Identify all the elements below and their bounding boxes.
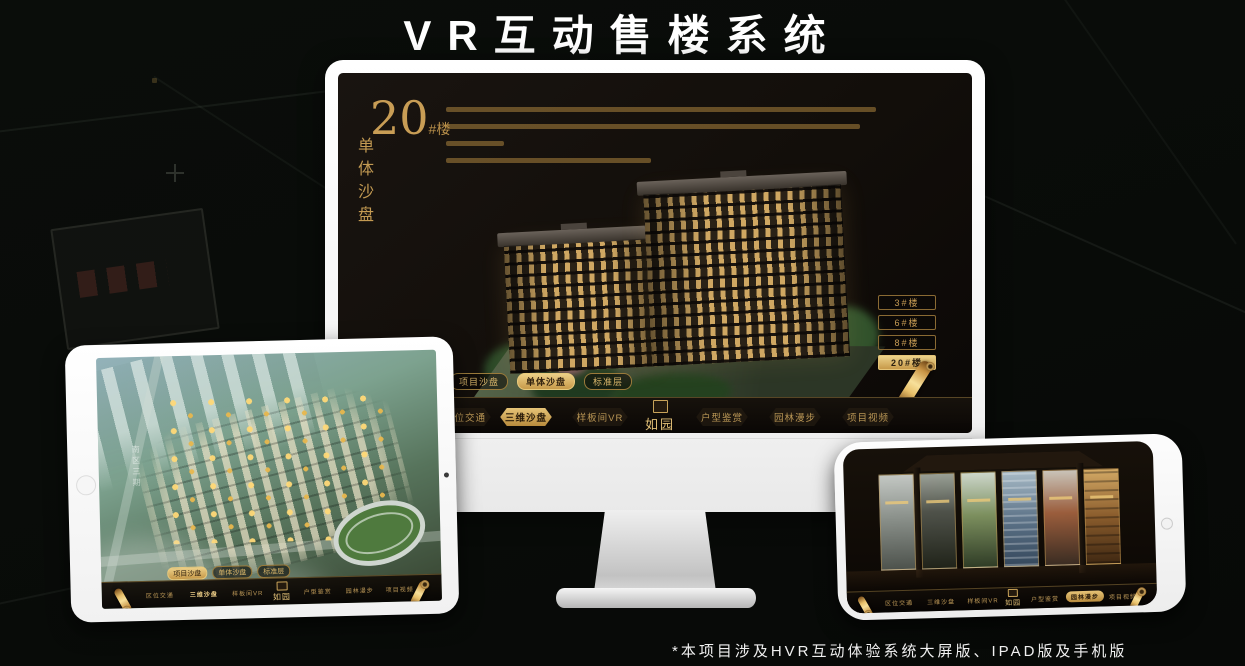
seal-icon: [1008, 589, 1018, 597]
tablet-nav-showroom-vr[interactable]: 样板间VR: [232, 588, 264, 598]
tab-single-sandbox[interactable]: 单体沙盘: [517, 373, 575, 390]
brand-logo-text: 如园: [645, 414, 675, 433]
block-subtitle: 单体沙盘: [352, 137, 376, 229]
phone-nav-garden-walk[interactable]: 园林漫步: [1066, 590, 1104, 602]
scene-card[interactable]: [878, 474, 916, 571]
phone-camera-icon: [1161, 517, 1173, 529]
phone-nav-location[interactable]: 区位交通: [885, 598, 913, 608]
camera-icon: [444, 472, 449, 477]
floor-button-3[interactable]: 3#楼: [878, 295, 936, 310]
bg-map-label: [152, 78, 157, 83]
tab-project-sandbox[interactable]: 项目沙盘: [450, 373, 508, 390]
nav-project-video[interactable]: 项目视频: [838, 408, 898, 426]
seal-icon: [652, 400, 667, 413]
tablet-screen: 南区三期 项目沙盘 单体沙盘 标准层 区位交通 三维沙盘 样板间VR 如园 户型…: [96, 350, 442, 609]
scroll-icon[interactable]: [113, 587, 133, 609]
bg-compass-icon: [166, 164, 184, 182]
footnote: *本项目涉及HVR互动体验系统大屏版、IPAD版及手机版: [672, 640, 1237, 661]
tablet-nav-garden-walk[interactable]: 园林漫步: [346, 585, 374, 595]
floor-button-8[interactable]: 8#楼: [878, 335, 936, 350]
scene-card[interactable]: [1042, 469, 1080, 566]
page: VR互动售楼系统 20#楼 单体沙盘: [0, 0, 1245, 666]
scene-gallery: [844, 467, 1157, 572]
scene-card[interactable]: [960, 471, 998, 568]
block-title: 20#楼: [370, 95, 450, 141]
monitor-stand-base: [556, 588, 756, 608]
tablet-nav-unit-gallery[interactable]: 户型鉴赏: [304, 586, 332, 596]
tablet-tab-project-sandbox[interactable]: 项目沙盘: [167, 566, 207, 580]
bg-plaque: [50, 208, 219, 350]
building-wing: [504, 238, 658, 374]
phone-screen: 区位交通 三维沙盘 样板间VR 如园 户型鉴赏 园林漫步 项目视频: [843, 441, 1157, 614]
phone-brand-logo-text: 如园: [1005, 598, 1021, 608]
tab-standard-floor[interactable]: 标准层: [584, 373, 632, 390]
bg-map-road: [982, 194, 1245, 407]
building-wing: [643, 184, 850, 366]
tablet-mockup: 南区三期 项目沙盘 单体沙盘 标准层 区位交通 三维沙盘 样板间VR 如园 户型…: [65, 336, 460, 622]
phone-nav-3d-sandbox[interactable]: 三维沙盘: [927, 597, 955, 607]
home-button-icon[interactable]: [76, 475, 96, 495]
scene-card[interactable]: [1001, 470, 1039, 567]
tablet-nav-3d-sandbox[interactable]: 三维沙盘: [190, 589, 218, 599]
nav-garden-walk[interactable]: 园林漫步: [765, 408, 825, 426]
nav-3d-sandbox[interactable]: 三维沙盘: [496, 408, 556, 426]
nav-unit-gallery[interactable]: 户型鉴赏: [692, 408, 752, 426]
brand-logo: 如园: [645, 400, 675, 433]
tablet-tab-single-sandbox[interactable]: 单体沙盘: [212, 565, 252, 579]
tablet-nav-location[interactable]: 区位交通: [146, 590, 174, 600]
scene-card[interactable]: [919, 473, 957, 570]
building-roof: [637, 171, 847, 196]
page-title: VR互动售楼系统: [0, 2, 1245, 63]
phone-mockup: 区位交通 三维沙盘 样板间VR 如园 户型鉴赏 园林漫步 项目视频: [834, 433, 1187, 621]
tablet-tab-standard-floor[interactable]: 标准层: [257, 564, 290, 578]
monitor-stand: [594, 510, 716, 592]
scene-card[interactable]: [1083, 468, 1121, 565]
tablet-brand-logo: 如园: [273, 581, 292, 602]
floor-button-6[interactable]: 6#楼: [878, 315, 936, 330]
tablet-brand-logo-text: 如园: [273, 591, 291, 602]
subtab-group: 项目沙盘 单体沙盘 标准层: [450, 373, 632, 390]
scroll-icon[interactable]: [857, 595, 874, 613]
road-label: 南区三期: [130, 445, 142, 489]
tablet-nav-project-video[interactable]: 项目视频: [386, 584, 414, 594]
phone-brand-logo: 如园: [1005, 589, 1022, 608]
nav-showroom-vr[interactable]: 样板间VR: [568, 408, 633, 426]
phone-nav-unit-gallery[interactable]: 户型鉴赏: [1031, 594, 1059, 604]
block-number: 20: [370, 91, 429, 145]
seal-icon: [276, 581, 287, 590]
phone-nav-showroom-vr[interactable]: 样板间VR: [967, 595, 999, 605]
building-roof: [497, 225, 658, 247]
